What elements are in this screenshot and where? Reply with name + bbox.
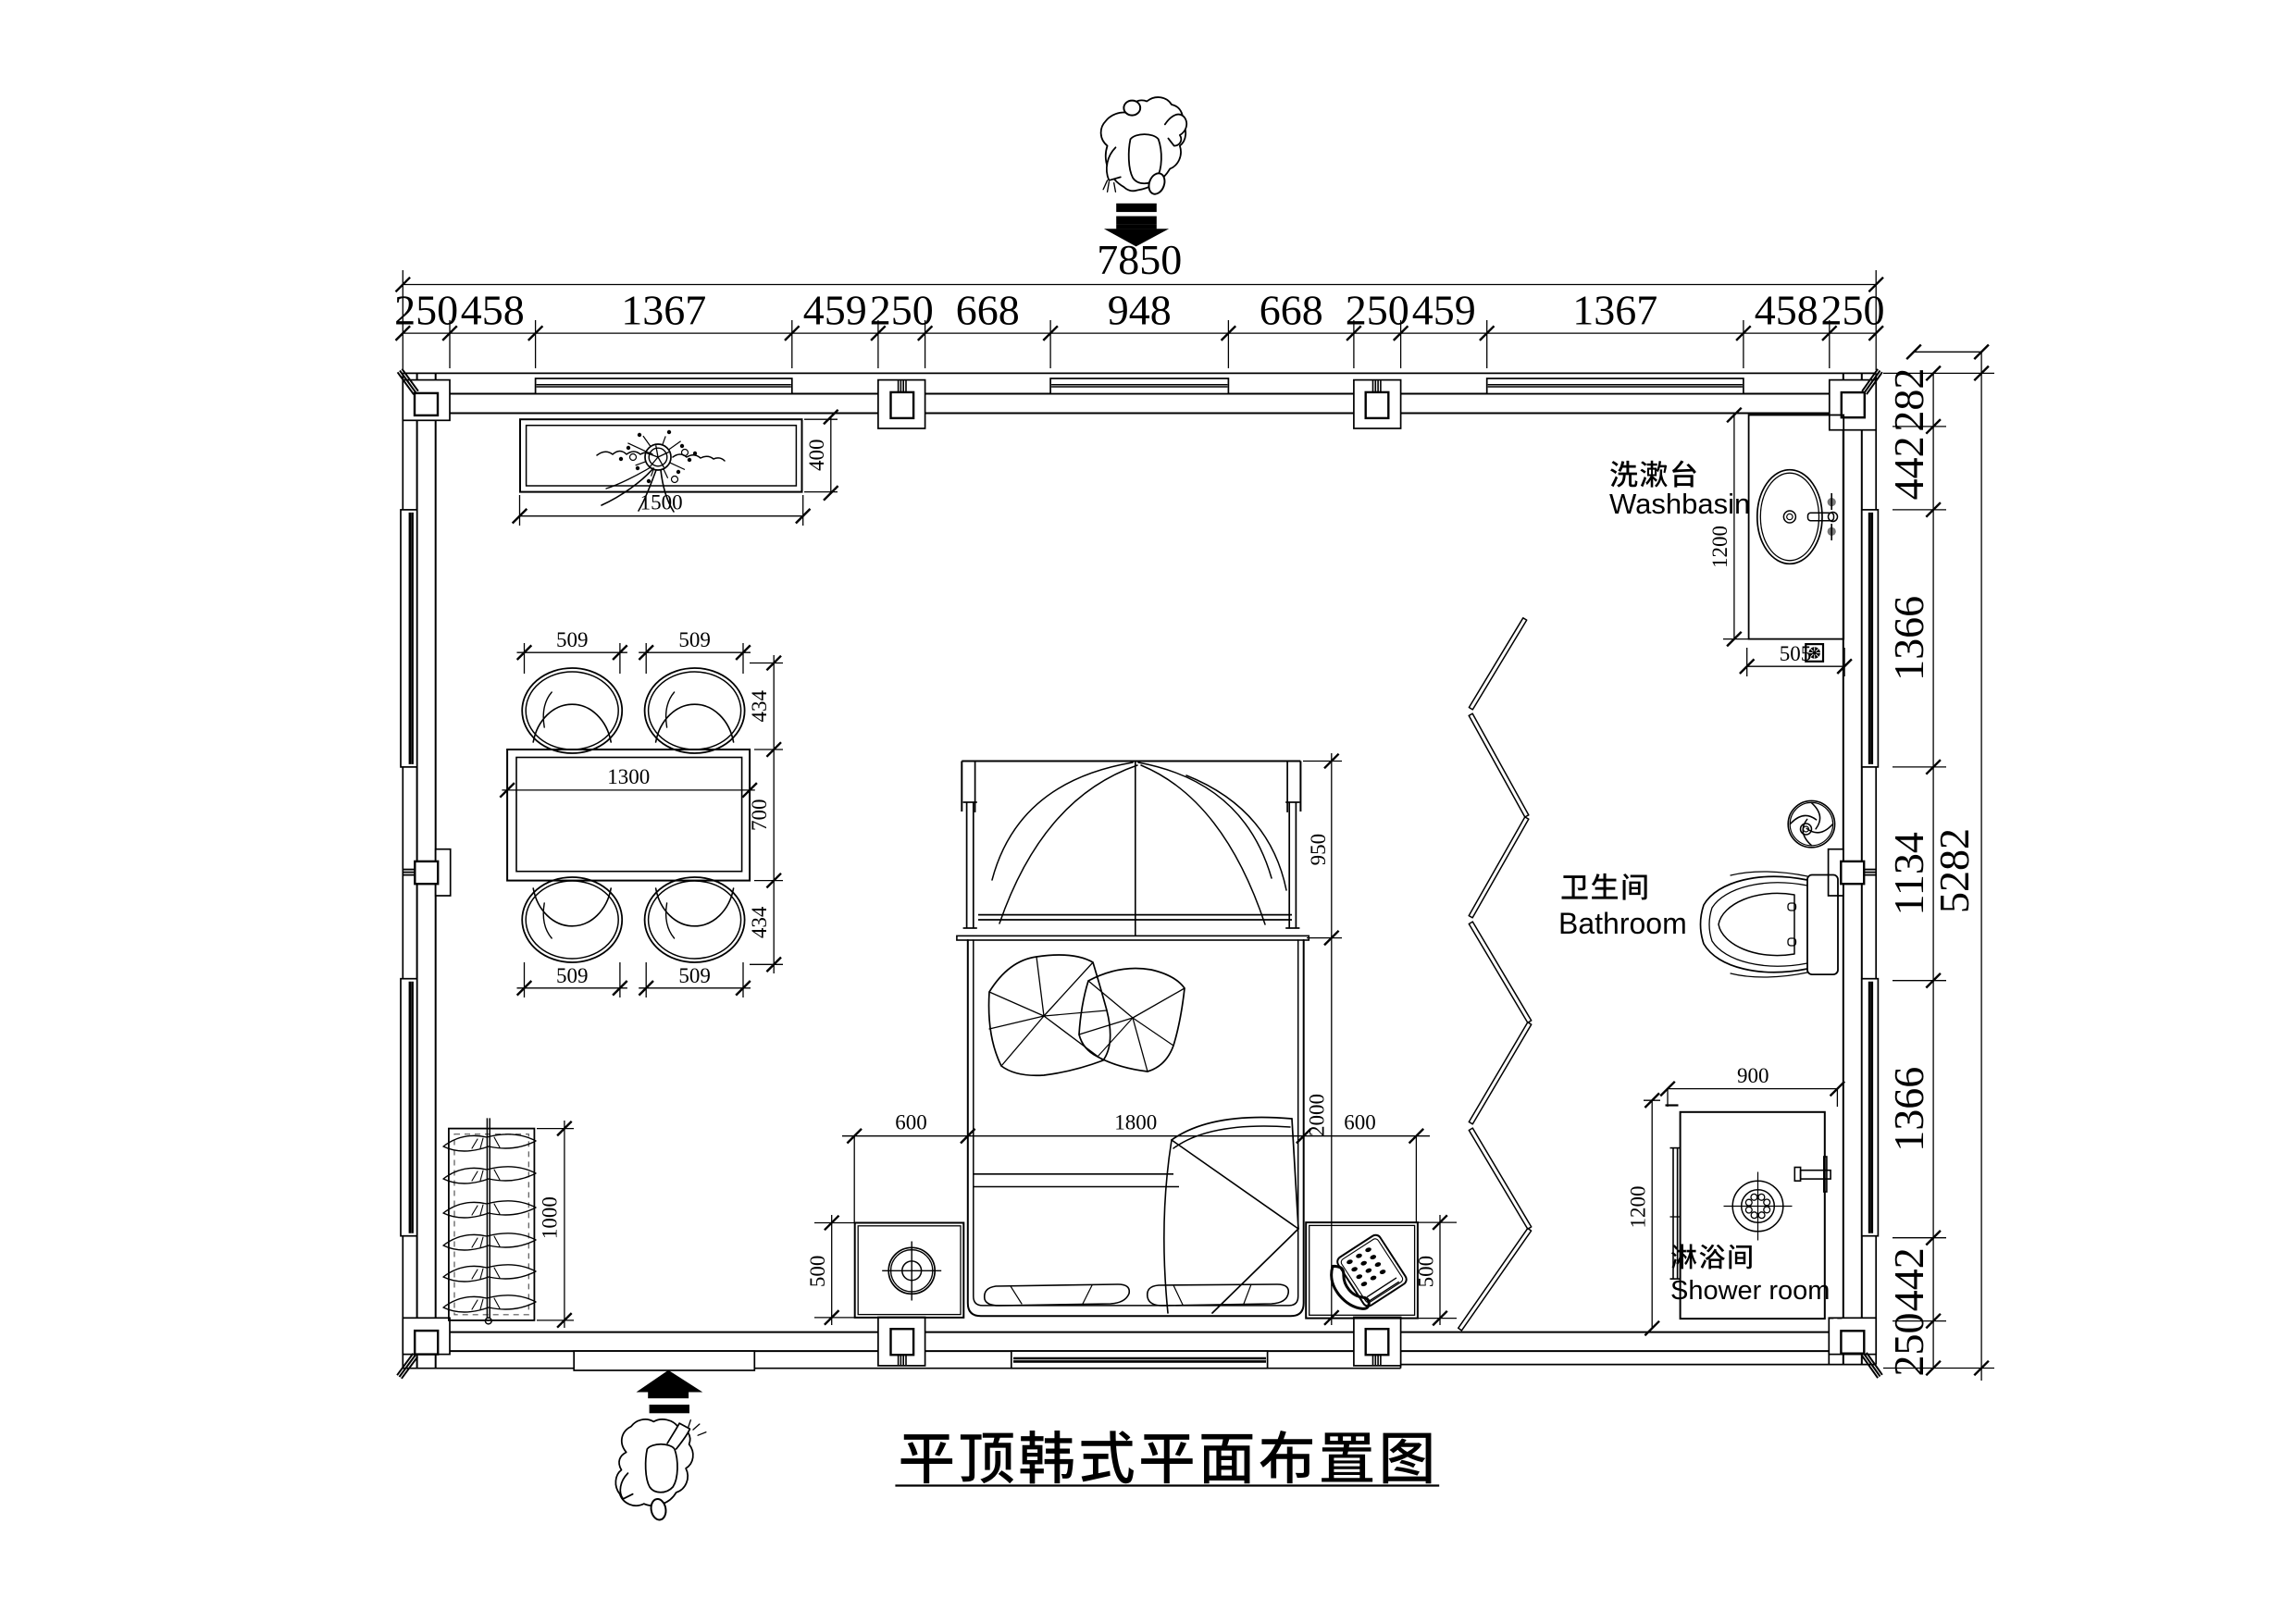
svg-text:509: 509 [556,628,589,651]
svg-text:250: 250 [1821,287,1885,334]
svg-text:1366: 1366 [1885,1067,1932,1152]
svg-text:250: 250 [394,287,458,334]
svg-text:1500: 1500 [640,491,683,514]
svg-text:1367: 1367 [621,287,706,334]
svg-text:600: 600 [895,1111,927,1134]
svg-text:1367: 1367 [1572,287,1657,334]
svg-text:442: 442 [1885,436,1932,500]
svg-text:600: 600 [1344,1111,1376,1134]
svg-text:282: 282 [1885,368,1932,432]
svg-text:434: 434 [748,689,771,722]
svg-text:458: 458 [1755,287,1818,334]
svg-text:2000: 2000 [1306,1094,1329,1136]
svg-text:250: 250 [1346,287,1409,334]
svg-text:509: 509 [556,964,589,987]
svg-text:950: 950 [1307,834,1330,866]
svg-text:500: 500 [1415,1256,1438,1288]
svg-text:442: 442 [1885,1247,1932,1311]
svg-text:668: 668 [956,287,1020,334]
svg-text:1200: 1200 [1708,526,1731,568]
svg-text:700: 700 [748,799,771,832]
svg-text:1000: 1000 [539,1196,562,1239]
svg-text:1200: 1200 [1627,1186,1650,1229]
svg-text:Washbasin: Washbasin [1609,488,1750,520]
svg-text:1800: 1800 [1114,1111,1157,1134]
svg-text:1300: 1300 [607,765,650,788]
svg-text:500: 500 [806,1256,829,1288]
svg-text:459: 459 [1412,287,1476,334]
svg-text:505: 505 [1780,642,1812,665]
svg-text:900: 900 [1737,1064,1769,1087]
svg-text:434: 434 [748,906,771,938]
svg-text:459: 459 [803,287,867,334]
svg-text:1366: 1366 [1885,596,1932,681]
svg-text:5282: 5282 [1930,828,1978,913]
svg-text:250: 250 [870,287,934,334]
svg-text:509: 509 [678,628,711,651]
svg-text:400: 400 [805,439,828,471]
svg-text:668: 668 [1260,287,1323,334]
svg-text:1134: 1134 [1885,832,1932,915]
svg-text:458: 458 [461,287,525,334]
svg-text:509: 509 [678,964,711,987]
svg-text:Shower room: Shower room [1670,1276,1830,1306]
svg-text:948: 948 [1108,287,1172,334]
svg-text:Bathroom: Bathroom [1558,907,1687,940]
svg-text:250: 250 [1885,1313,1932,1377]
